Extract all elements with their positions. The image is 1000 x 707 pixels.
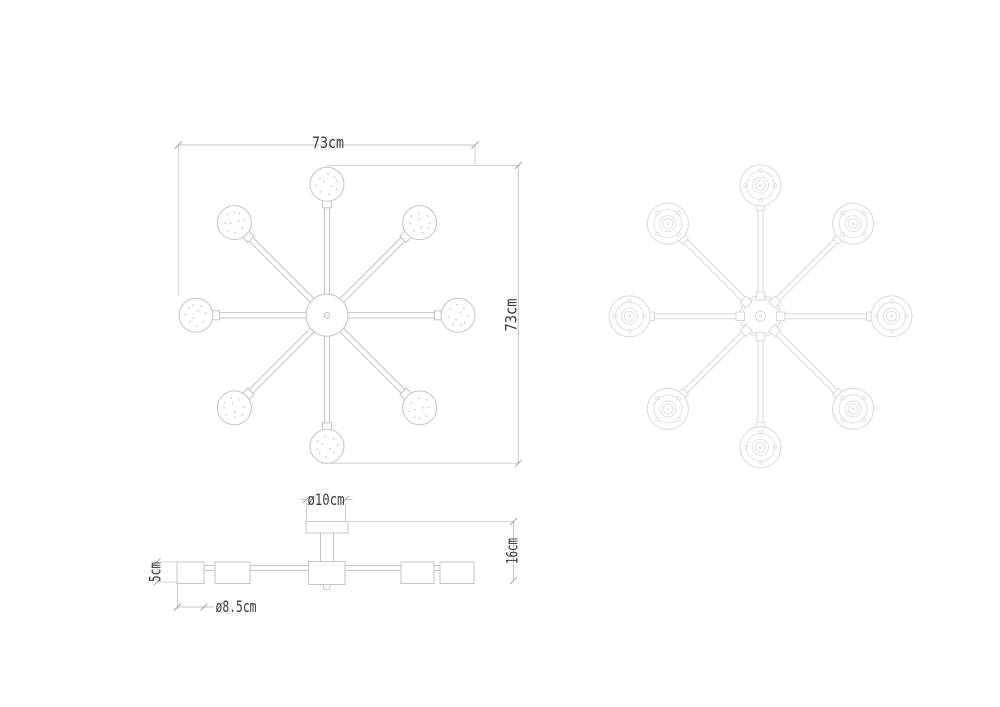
chandelier-arm xyxy=(310,167,344,296)
canopy-diameter-label: ø10cm xyxy=(308,490,345,509)
dimension-shade-height: 5cm xyxy=(146,559,177,586)
side-view-figure: ø10cm 16cm 5cm ø8.5cm xyxy=(146,490,522,616)
ceiling-canopy xyxy=(306,522,348,534)
chandelier-arm xyxy=(781,296,913,337)
dimension-canopy-diameter: ø10cm xyxy=(301,490,353,521)
chandelier-arm xyxy=(740,165,781,297)
hub-center-hole xyxy=(756,311,766,321)
chandelier-technical-drawing: 73cm 73cm xyxy=(0,0,1000,707)
chandelier-arm xyxy=(210,199,325,314)
lamp-shade xyxy=(440,562,474,584)
lamp-shade xyxy=(177,562,204,584)
shade-diameter-label: ø8.5cm xyxy=(216,597,257,616)
chandelier-arm xyxy=(310,334,344,463)
chandelier-arm xyxy=(609,296,741,337)
height-label: 73cm xyxy=(502,299,521,332)
dimension-shade-diameter: ø8.5cm xyxy=(174,585,257,617)
fixture-height-label: 16cm xyxy=(503,538,522,564)
dimension-fixture-height: 16cm xyxy=(349,518,522,584)
width-label: 73cm xyxy=(312,133,344,152)
chandelier-arm xyxy=(328,317,443,432)
chandelier-arm xyxy=(179,298,308,332)
top-view-figure: 73cm 73cm xyxy=(175,133,522,467)
arm-connector xyxy=(756,292,764,301)
chandelier-arm xyxy=(639,195,761,317)
chandelier-arm xyxy=(328,199,443,314)
lamp-shade xyxy=(215,562,250,584)
chandelier-arm xyxy=(760,195,882,317)
chandelier-arm xyxy=(740,336,781,468)
bottom-view-chandelier xyxy=(609,165,912,468)
lamp-shade xyxy=(401,562,434,584)
chandelier-arm xyxy=(639,316,761,438)
bottom-view-figure xyxy=(609,165,912,468)
hub-body xyxy=(309,562,346,585)
arm-connector xyxy=(736,312,745,320)
chandelier-arm xyxy=(760,316,882,438)
chandelier-arm xyxy=(210,317,325,432)
drawing-page: 73cm 73cm xyxy=(0,0,1000,707)
chandelier-arm xyxy=(346,298,475,332)
arm-connector xyxy=(756,332,764,341)
shade-height-label: 5cm xyxy=(146,562,165,582)
arm-connector xyxy=(777,312,786,320)
top-view-chandelier xyxy=(179,167,475,463)
hub-center-hole xyxy=(324,313,330,319)
